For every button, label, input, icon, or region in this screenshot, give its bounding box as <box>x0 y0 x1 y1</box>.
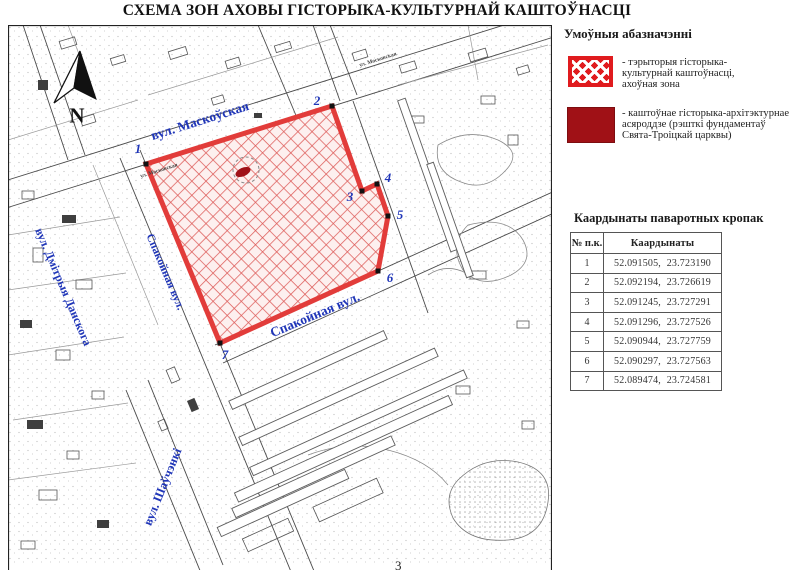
table-row: 4 52.091296, 23.727526 <box>571 312 722 332</box>
point-label-7: 7 <box>222 347 229 363</box>
cell-point-number: 5 <box>571 332 604 352</box>
point-label-1: 1 <box>135 141 142 157</box>
point-label-5: 5 <box>397 207 404 223</box>
legend-item-protected-territory-label: - тэрыторыя гісторыка- культурнай каштоў… <box>622 57 800 91</box>
legend-line: Свята-Троіцкай царквы) <box>622 130 800 141</box>
cell-coordinates: 52.091505, 23.723190 <box>604 254 722 274</box>
column-header-point-number: № п.к. <box>571 233 604 254</box>
point-label-3: 3 <box>347 189 354 205</box>
page-number-mark: 3 <box>395 558 402 574</box>
legend-heading: Умоўныя абазначэнні <box>564 26 692 42</box>
cell-point-number: 2 <box>571 273 604 293</box>
cell-point-number: 4 <box>571 312 604 332</box>
coordinates-table: № п.к. Каардынаты 1 52.091505, 23.723190… <box>570 232 722 391</box>
point-label-6: 6 <box>387 270 394 286</box>
table-header-row: № п.к. Каардынаты <box>571 233 722 254</box>
table-row: 1 52.091505, 23.723190 <box>571 254 722 274</box>
column-header-coordinates: Каардынаты <box>604 233 722 254</box>
legend-line: - тэрыторыя гісторыка- <box>622 57 800 68</box>
coordinates-heading: Каардынаты паваротных кропак <box>574 211 763 226</box>
cell-point-number: 6 <box>571 351 604 371</box>
cell-point-number: 1 <box>571 254 604 274</box>
legend-swatch-hatch-pattern <box>572 60 609 83</box>
cell-coordinates: 52.090944, 23.727759 <box>604 332 722 352</box>
legend-line: - каштоўнае гісторыка-архітэктурнае <box>622 108 800 119</box>
point-label-4: 4 <box>385 170 392 186</box>
map-canvas: вул. Маскоўская Спакойная вул. вул. Дміт… <box>8 25 552 570</box>
table-row: 6 52.090297, 23.727563 <box>571 351 722 371</box>
legend-item-historic-environment-label: - каштоўнае гісторыка-архітэктурнае асяр… <box>622 108 800 142</box>
page: { "title": "СХЕМА ЗОН АХОВЫ ГІСТОРЫКА-КУ… <box>0 0 800 570</box>
page-title: СХЕМА ЗОН АХОВЫ ГІСТОРЫКА-КУЛЬТУРНАЙ КАШ… <box>0 2 754 20</box>
north-label: N <box>69 104 84 129</box>
cell-coordinates: 52.092194, 23.726619 <box>604 273 722 293</box>
legend-swatch-protected-territory <box>568 56 613 87</box>
cell-coordinates: 52.091245, 23.727291 <box>604 293 722 313</box>
legend-line: ахоўная зона <box>622 79 800 90</box>
legend-line: культурнай каштоўнасці, <box>622 68 800 79</box>
cell-point-number: 3 <box>571 293 604 313</box>
table-row: 2 52.092194, 23.726619 <box>571 273 722 293</box>
table-row: 7 52.089474, 23.724581 <box>571 371 722 391</box>
cell-point-number: 7 <box>571 371 604 391</box>
map-svg <box>8 25 552 570</box>
cell-coordinates: 52.089474, 23.724581 <box>604 371 722 391</box>
table-row: 5 52.090944, 23.727759 <box>571 332 722 352</box>
cell-coordinates: 52.090297, 23.727563 <box>604 351 722 371</box>
point-label-2: 2 <box>314 93 321 109</box>
legend-line: асяроддзе (рэшткі фундаментаў <box>622 119 800 130</box>
cell-coordinates: 52.091296, 23.727526 <box>604 312 722 332</box>
table-row: 3 52.091245, 23.727291 <box>571 293 722 313</box>
legend-swatch-historic-environment <box>567 107 615 143</box>
